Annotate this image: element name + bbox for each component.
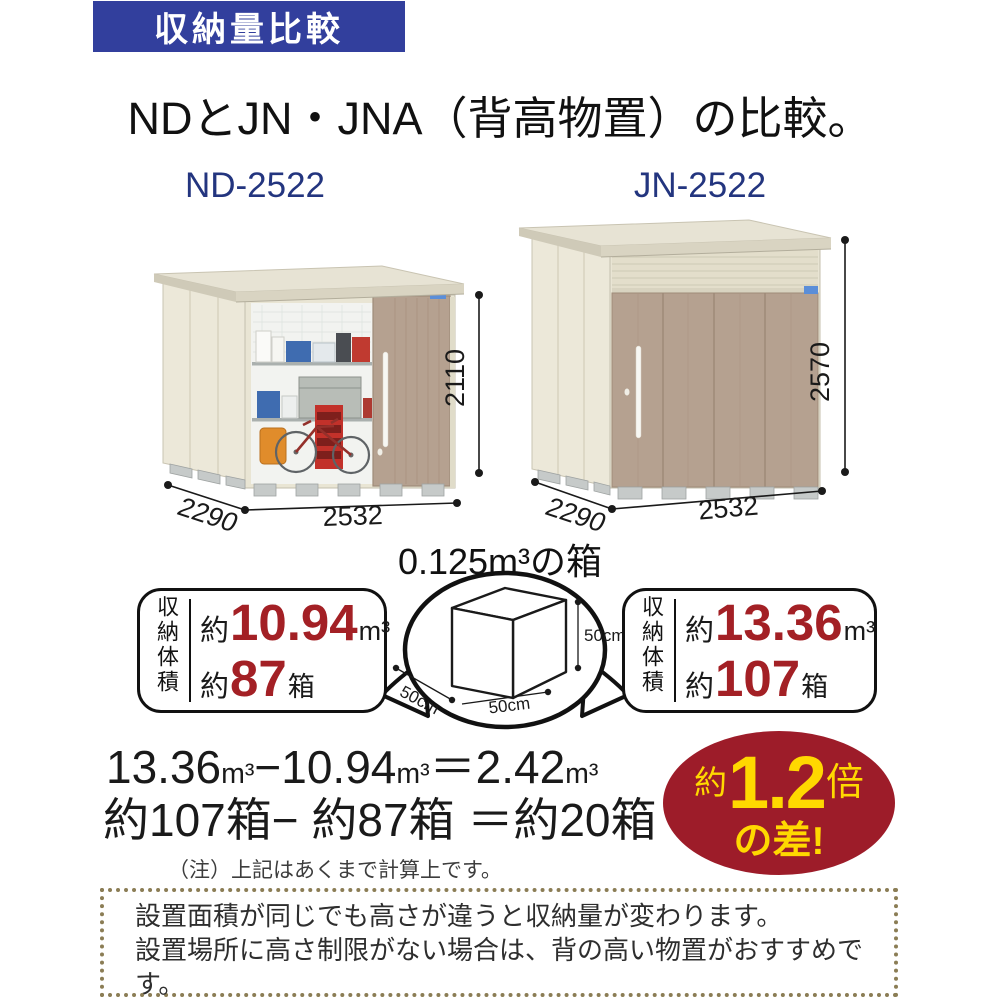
badge-value: 1.2 [728,746,825,820]
section-banner: 収納量比較 [93,1,405,52]
volume-row-nd: 約 10.94 m³ [200,597,390,648]
section-banner-title: 収納量比較 [154,2,344,51]
boxes-value: 87 [230,653,287,704]
jn-shutter [612,250,818,293]
capacity-box-nd: 収納体積 約 10.94 m³ 約 87 箱 [137,588,387,713]
capacity-box-jn: 収納体積 約 13.36 m³ 約 107 箱 [622,588,877,713]
boxes-row-nd: 約 87 箱 [200,653,390,704]
dim-width-jn: 2532 [697,490,759,525]
boxes-unit: 箱 [288,674,315,701]
door-keyhole [625,389,630,396]
boxes-value: 107 [715,653,800,704]
dim-height-jn: 2570 [805,342,835,402]
brand-sticker-jn [804,286,818,294]
boxes-row-jn: 約 107 箱 [685,653,875,704]
footer-line-2: 設置場所に高さ制限がない場合は、背の高い物置がおすすめです。 [135,933,884,1000]
shed-illustration-nd: 2110 2290 2532 [154,266,483,538]
reference-bubble: 50cm 50cm 50cm [382,573,628,727]
reference-box-title: 0.125m³の箱 [340,533,660,585]
door-keyhole [378,449,383,456]
calc-line-volume: 13.36m³−10.94m³＝2.42m³ [106,744,598,790]
volume-value: 13.36 [715,597,843,648]
footer-note-box: 設置面積が同じでも高さが違うと収納量が変わります。 設置場所に高さ制限がない場合… [100,888,898,997]
divider [674,599,676,702]
capacity-axis-label-nd: 収納体積 [150,595,182,706]
nd-door [373,296,450,486]
difference-badge: 約 1.2 倍 の差! [663,731,895,875]
volume-prefix: 約 [685,617,714,646]
model-label-nd: ND-2522 [125,166,385,206]
dim-width-nd: 2532 [322,500,383,532]
volume-value: 10.94 [230,597,358,648]
door-handle [636,346,641,438]
comparison-infographic: 収納量比較 NDとJN・JNA（背高物置）の比較。 ND-2522 JN-252… [0,0,1000,1000]
badge-suffix: 倍 [826,764,864,802]
shed-illustration-jn: 2570 2290 2532 [519,220,849,538]
cube-dim-height: 50cm [584,626,626,645]
volume-unit: m³ [359,618,390,645]
dim-height-nd: 2110 [440,349,470,407]
volume-row-jn: 約 13.36 m³ [685,597,875,648]
capacity-axis-label-jn: 収納体積 [635,595,667,706]
badge-prefix: 約 [694,766,727,799]
badge-line2: の差! [734,822,825,861]
divider [189,599,191,702]
calc-line-boxes: 約107箱− 約87箱 ＝約20箱 [103,797,657,843]
calc-note: （注）上記はあくまで計算上です。 [168,854,502,884]
model-label-jn: JN-2522 [570,166,830,206]
footer-line-1: 設置面積が同じでも高さが違うと収納量が変わります。 [135,899,884,933]
page-title: NDとJN・JNA（背高物置）の比較。 [0,82,1000,147]
reference-cube [452,588,566,698]
boxes-unit: 箱 [801,674,828,701]
volume-unit: m³ [844,618,875,645]
boxes-prefix: 約 [200,673,229,702]
jn-door [612,293,818,487]
dim-depth-nd: 2290 [173,491,244,538]
door-handle [383,352,388,447]
dim-depth-jn: 2290 [541,491,612,538]
volume-prefix: 約 [200,617,229,646]
boxes-prefix: 約 [685,673,714,702]
